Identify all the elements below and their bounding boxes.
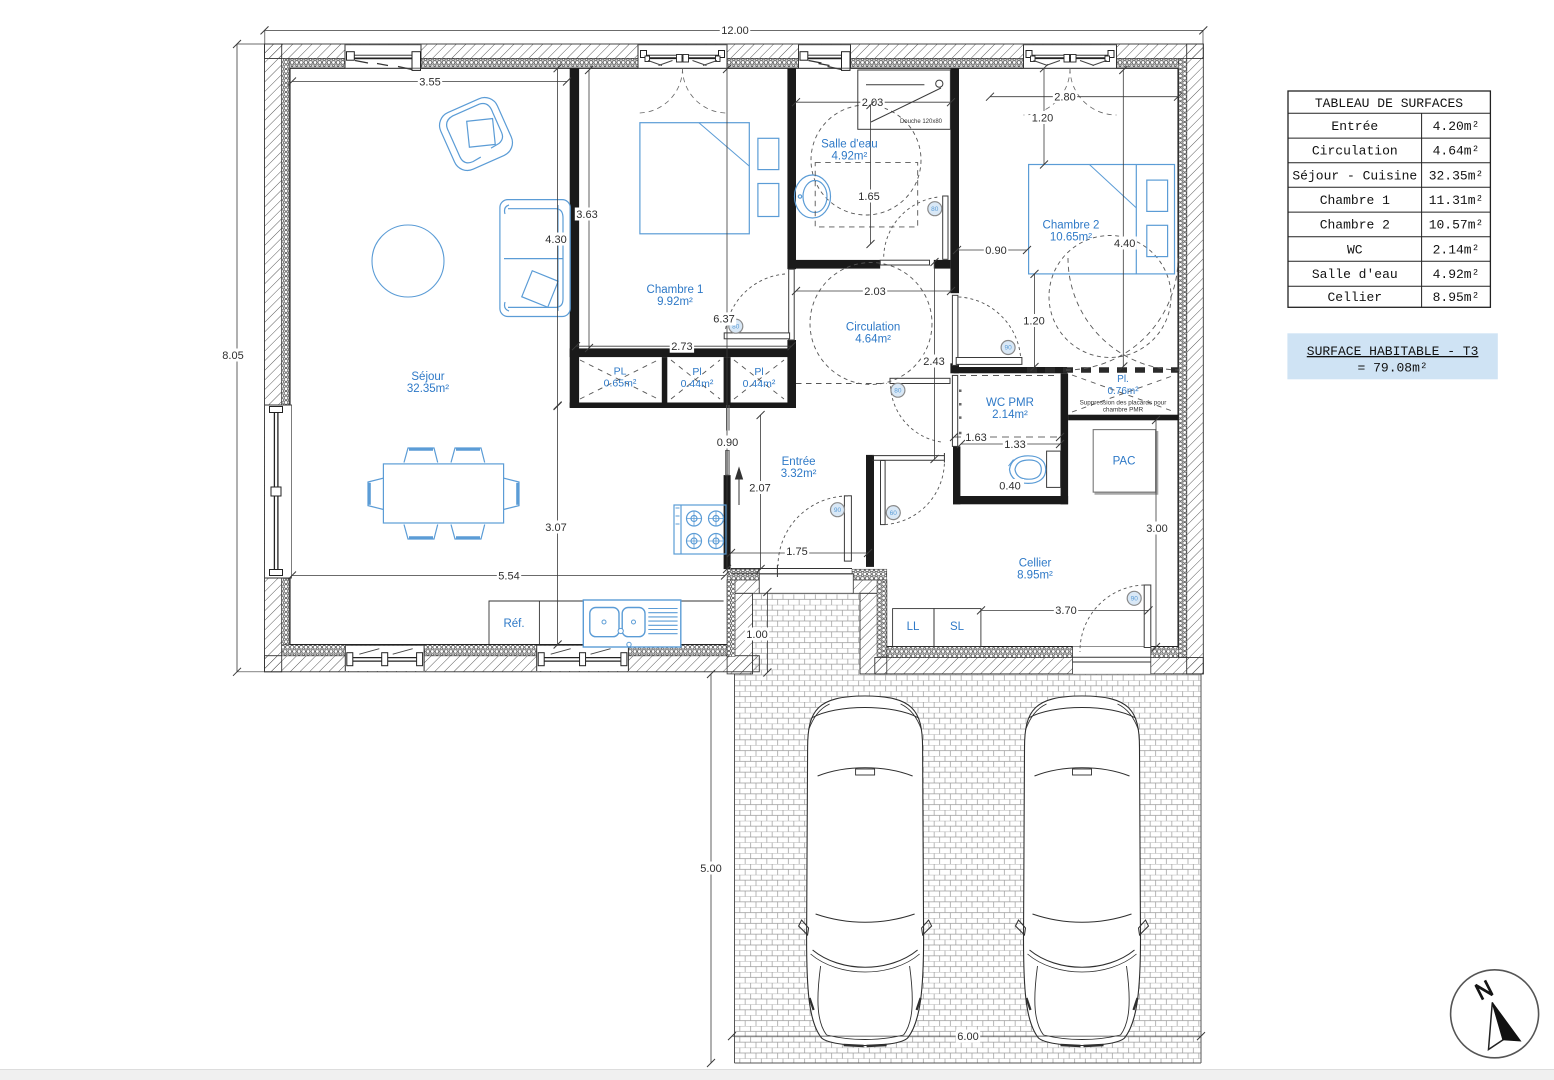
- svg-text:2.80: 2.80: [1054, 92, 1075, 104]
- svg-text:1.20: 1.20: [1032, 112, 1053, 124]
- svg-text:SURFACE HABITABLE - T3: SURFACE HABITABLE - T3: [1307, 344, 1479, 359]
- svg-text:Chambre 1: Chambre 1: [647, 284, 704, 296]
- svg-text:TABLEAU DE SURFACES: TABLEAU DE SURFACES: [1315, 96, 1463, 111]
- svg-text:3.00: 3.00: [1146, 523, 1167, 535]
- svg-text:32.35m²: 32.35m²: [1429, 168, 1484, 183]
- svg-text:32.35m²: 32.35m²: [407, 383, 449, 395]
- svg-text:6.37: 6.37: [713, 314, 734, 326]
- svg-text:= 79.08m²: = 79.08m²: [1357, 361, 1427, 376]
- svg-text:90: 90: [1131, 596, 1139, 603]
- svg-text:12.00: 12.00: [721, 25, 749, 37]
- svg-text:4.64m²: 4.64m²: [855, 334, 891, 346]
- svg-text:4.20m²: 4.20m²: [1433, 119, 1480, 134]
- svg-text:4.40: 4.40: [1114, 238, 1135, 250]
- svg-text:3.63: 3.63: [576, 209, 597, 221]
- svg-text:Pl: Pl: [754, 366, 763, 378]
- svg-text:Douche 120x80: Douche 120x80: [900, 119, 943, 125]
- svg-text:0.40: 0.40: [999, 481, 1020, 493]
- svg-text:8.95m²: 8.95m²: [1017, 570, 1053, 582]
- svg-text:0.90: 0.90: [985, 245, 1006, 257]
- svg-text:PAC: PAC: [1113, 456, 1136, 468]
- svg-text:0.44m²: 0.44m²: [743, 378, 776, 390]
- svg-text:chambre PMR: chambre PMR: [1103, 407, 1144, 414]
- svg-text:WC: WC: [1347, 242, 1363, 257]
- svg-text:3.32m²: 3.32m²: [781, 468, 817, 480]
- svg-text:Cellier: Cellier: [1327, 290, 1382, 305]
- svg-text:3.07: 3.07: [545, 522, 566, 534]
- svg-text:Circulation: Circulation: [1312, 144, 1398, 159]
- svg-text:0.90: 0.90: [717, 437, 738, 449]
- svg-text:90: 90: [1004, 345, 1012, 352]
- svg-text:0.65m²: 0.65m²: [604, 378, 637, 390]
- svg-text:0.44m²: 0.44m²: [681, 378, 714, 390]
- svg-text:Entrée: Entrée: [1331, 119, 1378, 134]
- svg-text:LL: LL: [907, 621, 920, 633]
- svg-text:4.92m²: 4.92m²: [832, 151, 868, 163]
- svg-text:2.73: 2.73: [671, 341, 692, 353]
- svg-text:Réf.: Réf.: [503, 618, 524, 630]
- svg-text:Pl: Pl: [692, 366, 701, 378]
- svg-text:10.65m²: 10.65m²: [1050, 231, 1092, 243]
- svg-text:4.30: 4.30: [545, 234, 566, 246]
- svg-text:2.07: 2.07: [749, 482, 770, 494]
- svg-text:Séjour - Cuisine: Séjour - Cuisine: [1292, 168, 1417, 183]
- svg-text:Entrée: Entrée: [782, 456, 816, 468]
- svg-text:Chambre 2: Chambre 2: [1320, 218, 1390, 233]
- svg-text:90: 90: [834, 507, 842, 514]
- svg-text:1.20: 1.20: [1023, 315, 1044, 327]
- svg-text:0.76m²: 0.76m²: [1107, 386, 1139, 397]
- svg-text:9.92m²: 9.92m²: [657, 296, 693, 308]
- svg-text:11.31m²: 11.31m²: [1429, 193, 1484, 208]
- svg-text:Salle d'eau: Salle d'eau: [1312, 267, 1398, 282]
- svg-text:PL: PL: [614, 366, 627, 378]
- svg-text:60: 60: [890, 510, 898, 517]
- svg-text:80: 80: [931, 206, 939, 213]
- svg-text:2.43: 2.43: [923, 356, 944, 368]
- svg-text:1.65: 1.65: [858, 191, 879, 203]
- svg-text:Chambre 2: Chambre 2: [1043, 219, 1100, 231]
- svg-text:3.70: 3.70: [1055, 605, 1076, 617]
- svg-text:1.00: 1.00: [746, 629, 767, 641]
- svg-text:4.64m²: 4.64m²: [1433, 144, 1480, 159]
- svg-text:2.03: 2.03: [864, 286, 885, 298]
- svg-text:8.05: 8.05: [222, 350, 243, 362]
- svg-text:Chambre 1: Chambre 1: [1320, 193, 1390, 208]
- svg-text:Circulation: Circulation: [846, 322, 900, 334]
- svg-text:80: 80: [894, 387, 902, 394]
- svg-text:Suppression des placards pour: Suppression des placards pour: [1080, 400, 1167, 407]
- svg-text:3.55: 3.55: [419, 76, 440, 88]
- svg-text:4.92m²: 4.92m²: [1433, 267, 1480, 282]
- svg-text:SL: SL: [950, 621, 965, 633]
- svg-text:5.00: 5.00: [700, 863, 721, 875]
- svg-text:8.95m²: 8.95m²: [1433, 290, 1480, 305]
- svg-text:10.57m²: 10.57m²: [1429, 218, 1484, 233]
- svg-text:5.54: 5.54: [498, 570, 519, 582]
- svg-text:Cellier: Cellier: [1019, 558, 1052, 570]
- svg-text:2.14m²: 2.14m²: [992, 409, 1028, 421]
- svg-text:Salle d'eau: Salle d'eau: [821, 139, 878, 151]
- svg-text:Séjour: Séjour: [411, 371, 444, 383]
- svg-text:6.00: 6.00: [957, 1031, 978, 1043]
- svg-text:WC PMR: WC PMR: [986, 397, 1034, 409]
- svg-text:1.33: 1.33: [1004, 439, 1025, 451]
- svg-text:Pl.: Pl.: [1117, 374, 1129, 385]
- svg-text:1.63: 1.63: [965, 432, 986, 444]
- svg-text:2.14m²: 2.14m²: [1433, 242, 1480, 257]
- svg-text:1.75: 1.75: [786, 546, 807, 558]
